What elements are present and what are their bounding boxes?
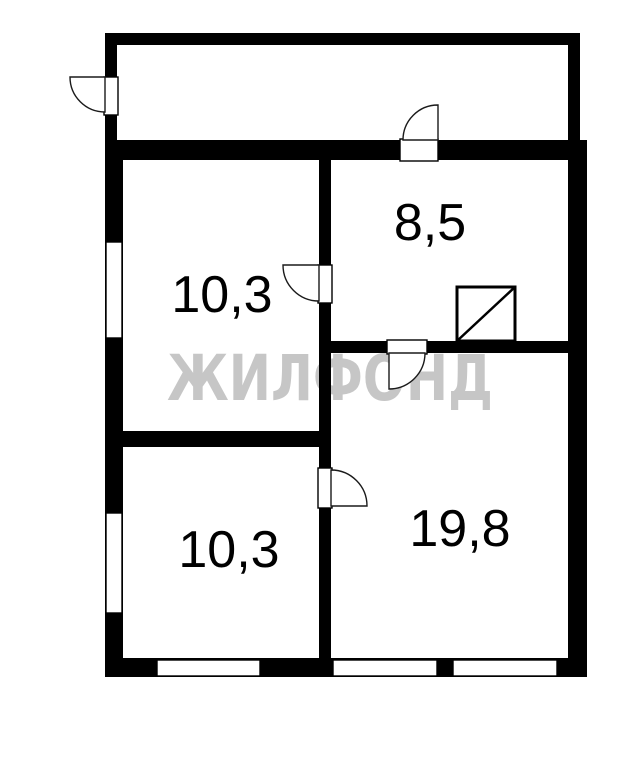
- room-area-label-lower-left: 10,3: [178, 521, 279, 579]
- doorway-veranda-exterior: [104, 77, 118, 115]
- floor-plan-canvas: ЖИЛФОНД: [0, 0, 644, 768]
- room-area-label-lower-right: 19,8: [409, 500, 510, 558]
- room-area-label-upper-left: 10,3: [171, 266, 272, 324]
- wall-partition-left: [123, 431, 319, 447]
- doorway-veranda-inner: [400, 139, 438, 161]
- stove-icon: [457, 287, 515, 341]
- wall-partition-right: [331, 341, 568, 353]
- doorway-lower-rooms: [318, 468, 332, 508]
- wall-main-right: [568, 160, 587, 658]
- room-area-label-upper-right: 8,5: [394, 194, 466, 252]
- wall-central-vertical: [319, 160, 331, 658]
- wall-veranda-right: [568, 45, 580, 140]
- window-left-upper: [106, 242, 122, 338]
- doorway-right-rooms: [387, 340, 427, 354]
- doorway-upper-rooms: [318, 265, 332, 303]
- wall-main-top: [105, 140, 587, 160]
- floor-plan-svg: ЖИЛФОНД: [0, 0, 644, 768]
- window-left-lower: [106, 513, 122, 613]
- window-bottom-right: [453, 660, 557, 676]
- window-bottom-left: [157, 660, 260, 676]
- window-bottom-center: [333, 660, 437, 676]
- wall-veranda-top: [105, 33, 580, 45]
